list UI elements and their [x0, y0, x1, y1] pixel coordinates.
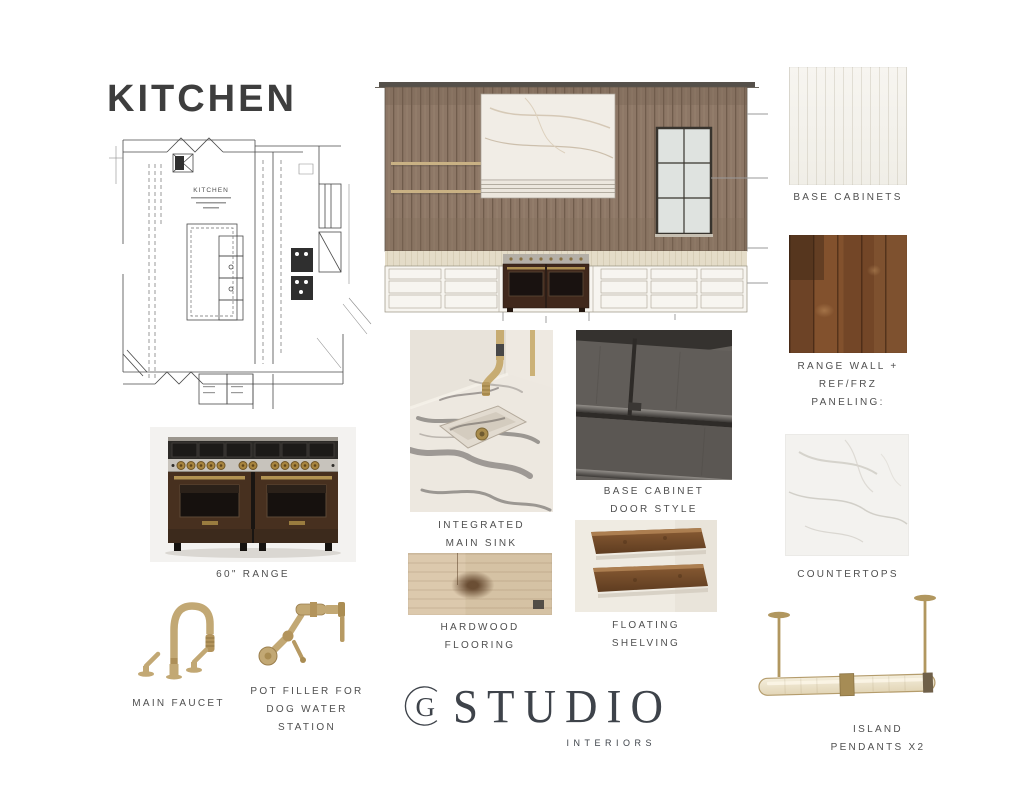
- main-faucet-photo: [136, 590, 218, 682]
- island-pendants-label: ISLAND PENDANTS X2: [745, 721, 1011, 757]
- base-cabinet-door-photo: [576, 330, 732, 480]
- pot-filler-label: POT FILLER FOR DOG WATER STATION: [242, 683, 372, 737]
- page-title: KITCHEN: [107, 78, 297, 121]
- kitchen-mood-board: KITCHEN: [0, 0, 1024, 793]
- floor-plan-room-label: KITCHEN: [193, 187, 229, 194]
- kitchen-elevation-rendering: [375, 78, 768, 323]
- base-cabinet-door-label: BASE CABINET DOOR STYLE: [576, 483, 732, 519]
- countertops-label: COUNTERTOPS: [783, 566, 913, 584]
- floating-shelving-label: FLOATING SHELVING: [575, 617, 717, 653]
- hardwood-flooring-swatch: [408, 553, 552, 615]
- island-pendant-light: [745, 588, 1011, 716]
- kitchen-floor-plan: KITCHEN: [103, 124, 375, 416]
- floating-shelves-photo: [575, 520, 717, 612]
- logo-name: STUDIO: [453, 679, 672, 734]
- integrated-sink-photo: [410, 330, 553, 512]
- hardwood-flooring-label: HARDWOOD FLOORING: [408, 619, 552, 655]
- range-photo: [150, 427, 356, 562]
- base-cabinets-label: BASE CABINETS: [783, 189, 913, 207]
- pot-filler-photo: [252, 598, 352, 684]
- monogram-g: G: [416, 692, 436, 722]
- base-cabinets-swatch: [789, 67, 907, 185]
- integrated-sink-label: INTEGRATED MAIN SINK: [410, 517, 553, 553]
- main-faucet-label: MAIN FAUCET: [116, 695, 241, 713]
- studio-logo: G STUDIO INTERIORS: [402, 660, 672, 765]
- range-label: 60" RANGE: [150, 566, 356, 584]
- range-wall-paneling-swatch: [789, 235, 907, 353]
- range-wall-paneling-label: RANGE WALL + REF/FRZ PANELING:: [783, 358, 913, 412]
- countertops-swatch: [785, 434, 909, 556]
- cg-monogram-icon: G: [402, 660, 447, 752]
- logo-subtitle: INTERIORS: [453, 738, 672, 748]
- marble-veins: [785, 434, 909, 556]
